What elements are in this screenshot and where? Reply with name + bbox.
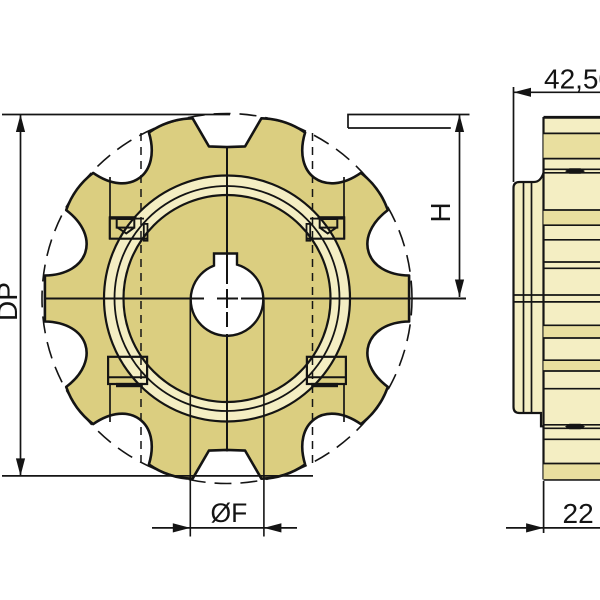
svg-text:H: H bbox=[425, 202, 456, 222]
svg-text:DP: DP bbox=[0, 282, 23, 321]
svg-text:42,50: 42,50 bbox=[544, 63, 600, 94]
svg-text:ØF: ØF bbox=[211, 498, 248, 528]
svg-text:22: 22 bbox=[563, 498, 594, 529]
